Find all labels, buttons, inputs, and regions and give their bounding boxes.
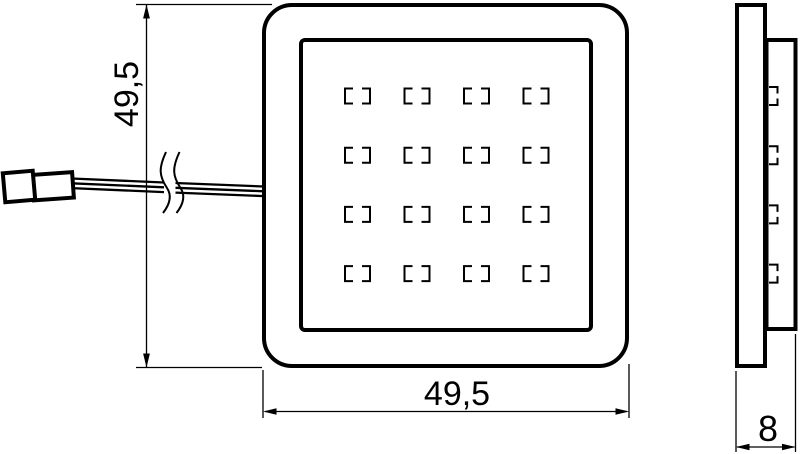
side-view [737, 5, 796, 366]
wire [60, 178, 164, 183]
cable-assembly [3, 152, 264, 213]
wire [60, 183, 164, 188]
depth-dimension-label: 8 [758, 408, 778, 449]
width-dimension-label: 49,5 [424, 375, 490, 413]
led-board-outline [301, 40, 591, 330]
cable-connector-body [32, 172, 74, 200]
arrowhead-right [616, 408, 630, 415]
arrowhead-right [782, 444, 796, 450]
width-dimension: 49,5 [263, 364, 629, 418]
side-panel-outline [737, 5, 765, 366]
side-body-outline [767, 40, 796, 329]
technical-drawing-canvas: 49,5 49,5 8 [0, 0, 800, 454]
led-panel-drawing: 49,5 49,5 8 [0, 0, 800, 454]
wire [176, 193, 265, 197]
arrowhead-up [143, 5, 150, 19]
wire [176, 188, 265, 192]
arrowhead-down [143, 354, 150, 368]
wire [60, 188, 164, 193]
arrowhead-left [736, 444, 750, 450]
height-dimension-label: 49,5 [108, 61, 146, 127]
front-view [264, 5, 627, 366]
wire [176, 183, 265, 187]
arrowhead-left [263, 408, 277, 415]
cable-connector-plug [3, 171, 35, 203]
